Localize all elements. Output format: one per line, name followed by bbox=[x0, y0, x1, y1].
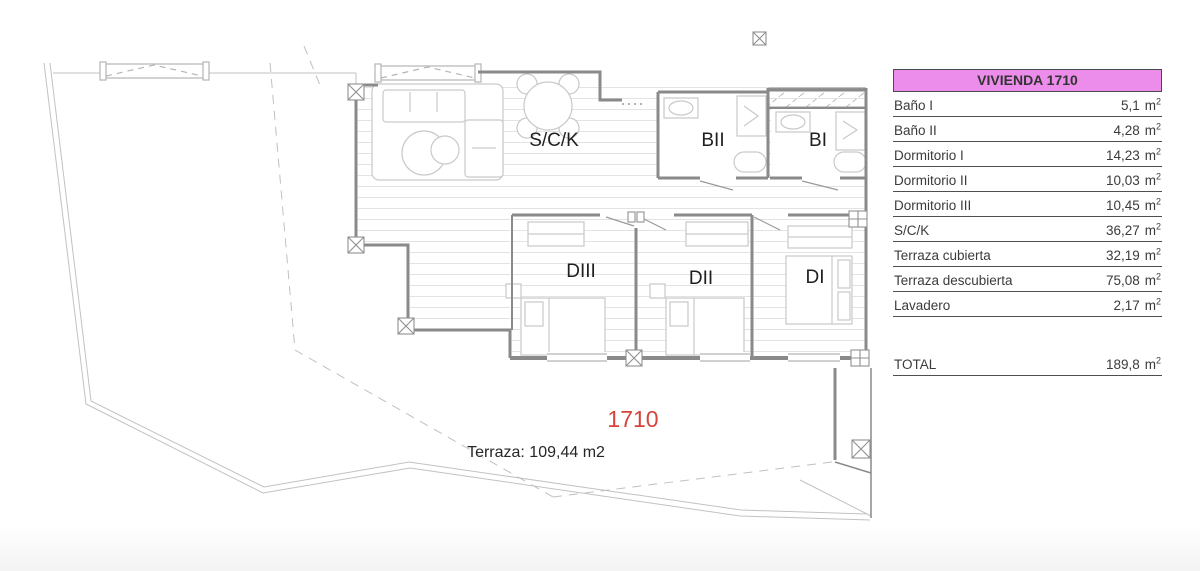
row-label: Terraza descubierta bbox=[894, 273, 1013, 288]
row-value: 75,08m2 bbox=[1106, 273, 1161, 288]
row-value: 36,27m2 bbox=[1106, 223, 1161, 238]
row-value: 4,28m2 bbox=[1113, 123, 1161, 138]
room-label-di: DI bbox=[806, 267, 825, 288]
row-label: Dormitorio III bbox=[894, 198, 971, 213]
row-value: 2,17m2 bbox=[1113, 298, 1161, 313]
floorplan-page: S/C/K BII BI DIII DII DI 1710 Terraza: 1… bbox=[0, 0, 1200, 571]
x-box bbox=[348, 84, 364, 100]
area-table: VIVIENDA 1710 Baño I5,1m2Baño II4,28m2Do… bbox=[893, 69, 1162, 376]
table-row: Dormitorio I14,23m2 bbox=[893, 142, 1162, 167]
total-label: TOTAL bbox=[894, 357, 936, 372]
table-row: Baño II4,28m2 bbox=[893, 117, 1162, 142]
table-row: Baño I5,1m2 bbox=[893, 92, 1162, 117]
area-table-title: VIVIENDA 1710 bbox=[893, 69, 1162, 92]
balcony-door bbox=[375, 64, 481, 82]
terrace-area-label: Terraza: 109,44 m2 bbox=[467, 444, 605, 461]
unit-number-label: 1710 bbox=[607, 406, 658, 432]
table-row: Lavadero2,17m2 bbox=[893, 292, 1162, 317]
row-label: S/C/K bbox=[894, 223, 929, 238]
row-label: Baño I bbox=[894, 98, 933, 113]
area-table-rows: Baño I5,1m2Baño II4,28m2Dormitorio I14,2… bbox=[893, 92, 1162, 317]
room-label-dii: DII bbox=[689, 268, 713, 289]
row-value: 14,23m2 bbox=[1106, 148, 1161, 163]
x-box bbox=[398, 318, 414, 334]
room-label-bi: BI bbox=[809, 130, 827, 151]
row-value: 10,03m2 bbox=[1106, 173, 1161, 188]
row-value: 10,45m2 bbox=[1106, 198, 1161, 213]
sofa-and-kitchen-furniture bbox=[372, 84, 503, 180]
table-row: Terraza descubierta75,08m2 bbox=[893, 267, 1162, 292]
row-value: 5,1m2 bbox=[1121, 98, 1161, 113]
cross-box bbox=[851, 350, 869, 366]
row-label: Lavadero bbox=[894, 298, 950, 313]
row-label: Terraza cubierta bbox=[894, 248, 991, 263]
x-box bbox=[753, 32, 766, 45]
row-label: Baño II bbox=[894, 123, 937, 138]
row-label: Dormitorio I bbox=[894, 148, 964, 163]
table-row: S/C/K36,27m2 bbox=[893, 217, 1162, 242]
table-row: Dormitorio II10,03m2 bbox=[893, 167, 1162, 192]
cross-box bbox=[849, 211, 867, 227]
dining-table bbox=[517, 74, 579, 138]
room-label-diii: DIII bbox=[566, 261, 596, 282]
room-label-bii: BII bbox=[701, 130, 724, 151]
x-box bbox=[626, 350, 642, 366]
area-table-total-row: TOTAL 189,8m2 bbox=[893, 351, 1162, 376]
table-row: Terraza cubierta32,19m2 bbox=[893, 242, 1162, 267]
total-value: 189,8m2 bbox=[1106, 357, 1161, 372]
x-box bbox=[348, 237, 364, 253]
x-box bbox=[852, 440, 870, 458]
room-label-sck: S/C/K bbox=[529, 130, 579, 151]
terrace-window bbox=[100, 62, 209, 80]
row-label: Dormitorio II bbox=[894, 173, 968, 188]
table-row: Dormitorio III10,45m2 bbox=[893, 192, 1162, 217]
row-value: 32,19m2 bbox=[1106, 248, 1161, 263]
